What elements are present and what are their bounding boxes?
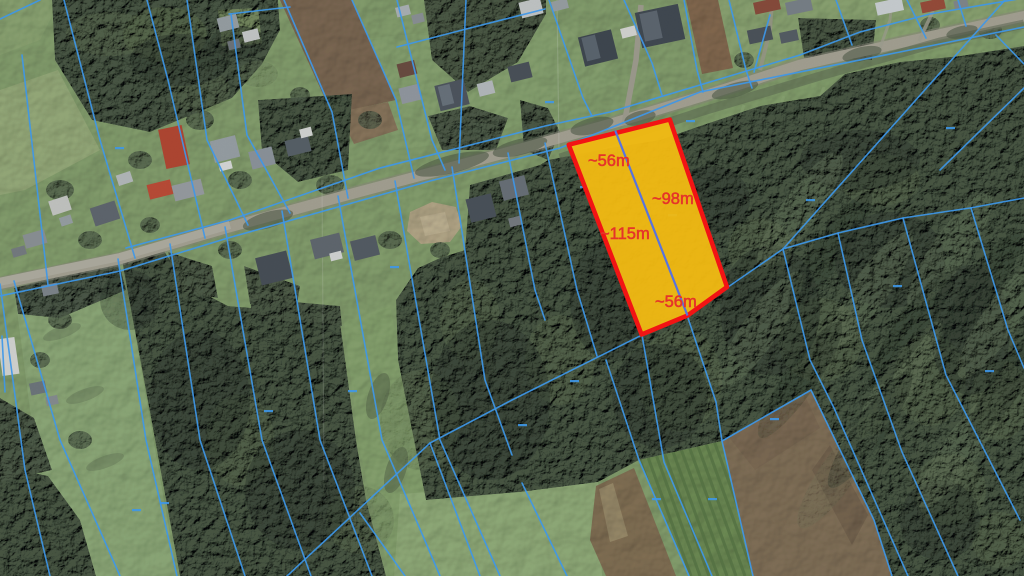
svg-text:~56m: ~56m — [588, 152, 630, 170]
svg-text:~115m: ~115m — [600, 225, 650, 243]
svg-text:~98m: ~98m — [652, 190, 694, 208]
svg-text:~56m: ~56m — [655, 293, 697, 311]
